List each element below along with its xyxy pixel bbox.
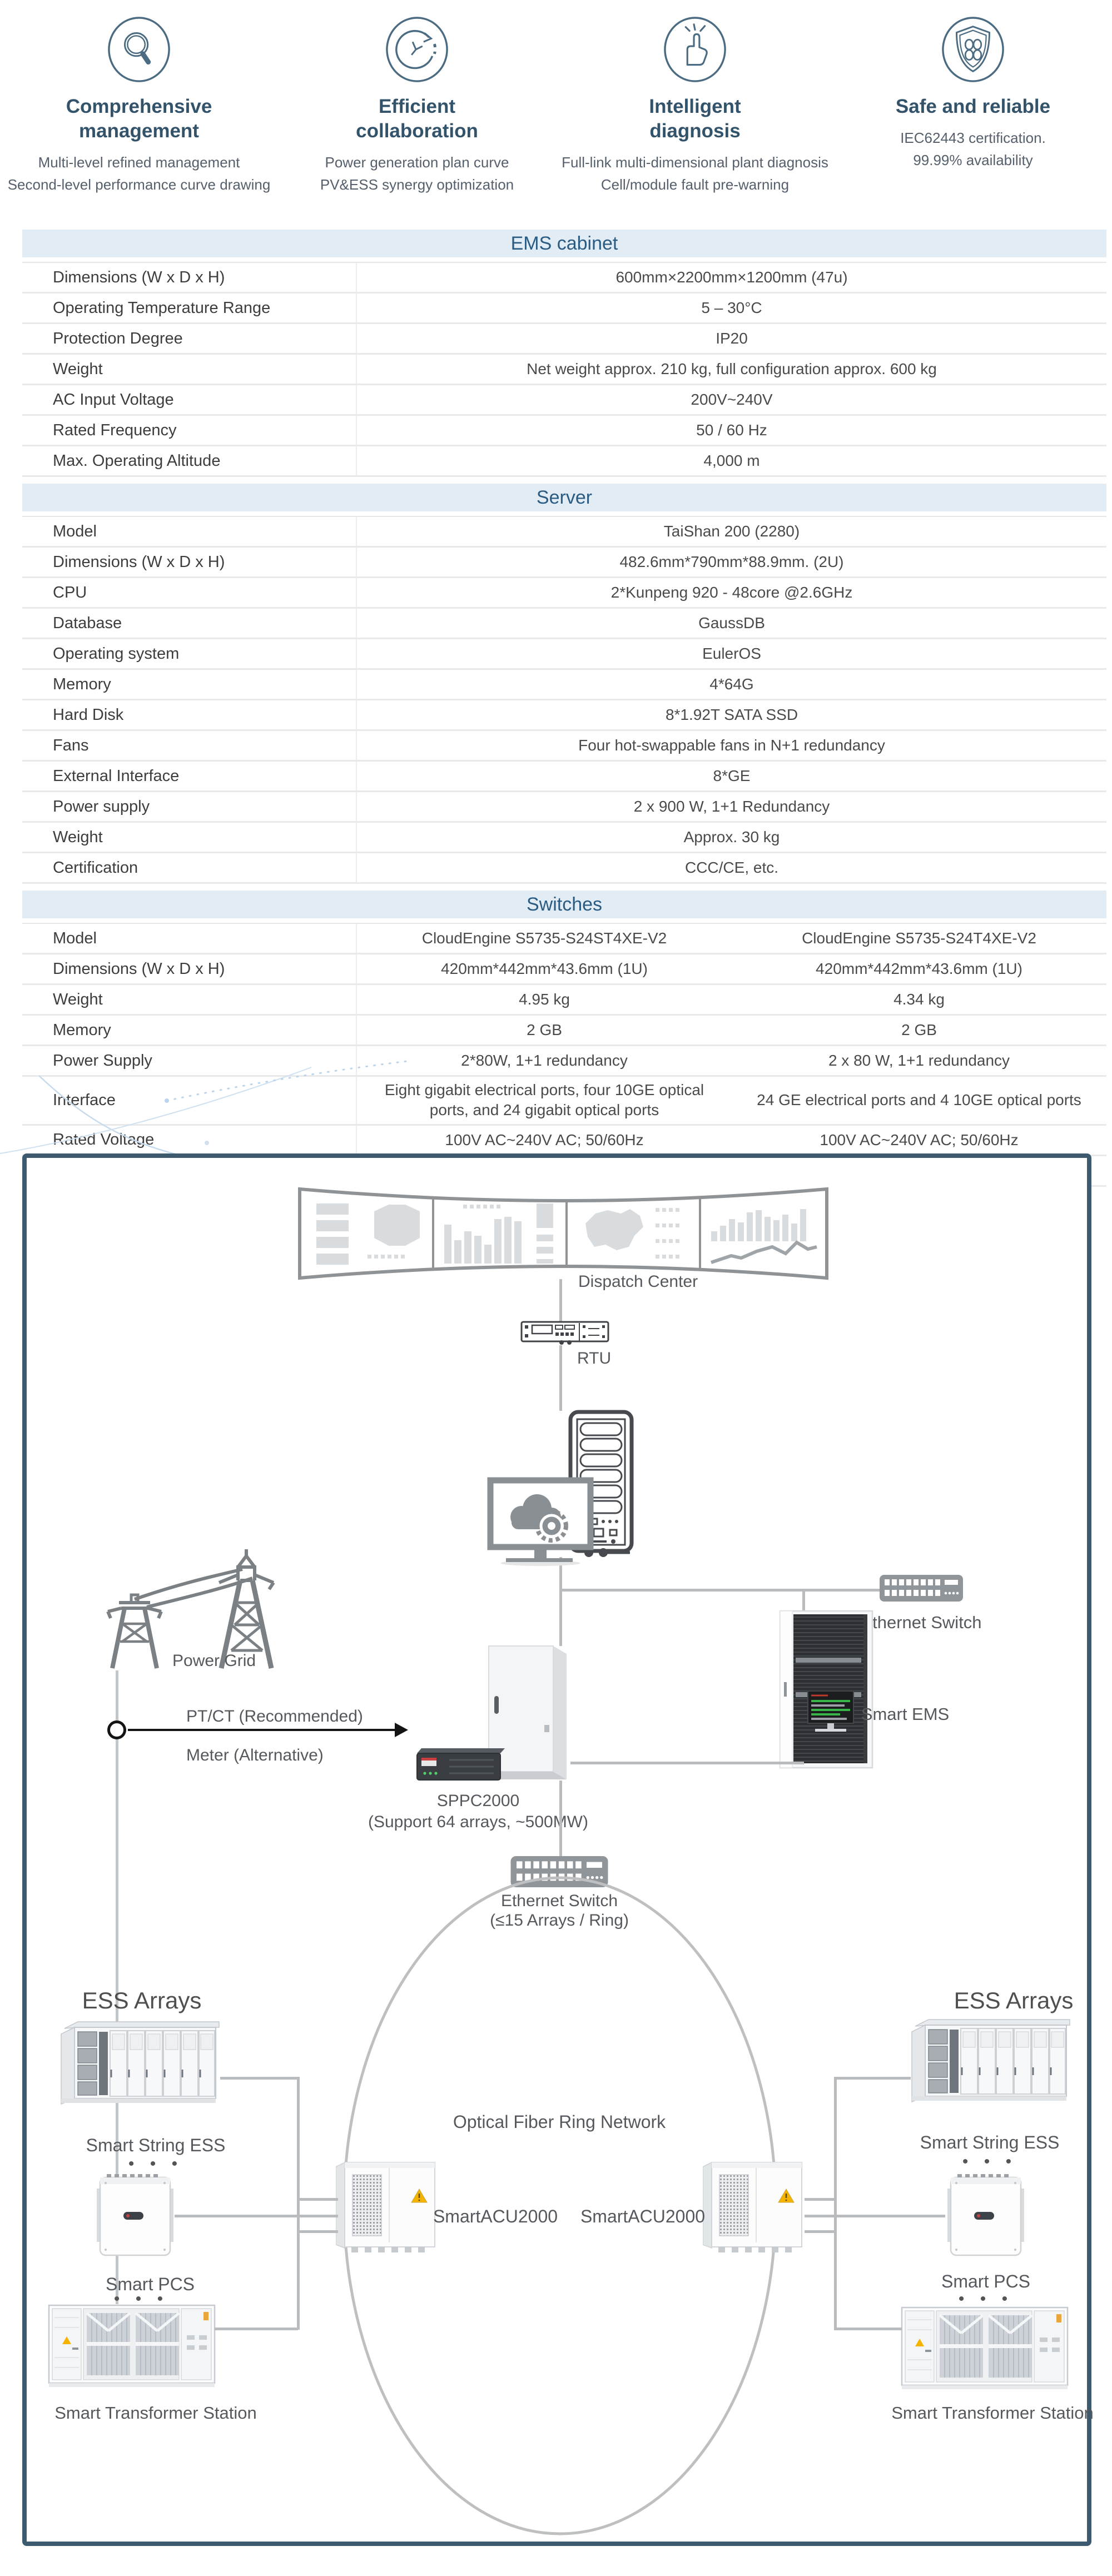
spec-label: Memory [22,1016,356,1045]
spec-label: Weight [22,985,356,1014]
spec-row: Hard Disk8*1.92T SATA SSD [22,700,1106,731]
spec-label: Operating Temperature Range [22,294,356,322]
feature-desc: IEC62443 certification. 99.99% availabil… [900,127,1046,172]
server-title: Server [22,484,1106,511]
smart-string-ess-left-label: Smart String ESS [86,2135,226,2156]
smart-pcs-right-icon [945,2173,1026,2261]
switches-title: Switches [22,891,1106,918]
spec-label: External Interface [22,762,356,790]
connector-switch-ems [802,1589,805,1612]
spec-value: 100V AC~240V AC; 50/60Hz [356,1126,732,1155]
ethernet-switch-icon [880,1575,963,1604]
spec-value: 4,000 m [356,446,1106,475]
ellipsis-left-1: • • • [128,2155,183,2174]
spec-value: 420mm*442mm*43.6mm (1U) [356,954,732,983]
spec-value: TaiShan 200 (2280) [356,517,1106,546]
spec-row: Memory4*64G [22,670,1106,700]
spec-value: 100V AC~240V AC; 50/60Hz [732,1126,1106,1155]
bus-right [834,2077,837,2330]
spec-value: 2 GB [356,1016,732,1045]
ess-arrays-left-title: ESS Arrays [82,1987,202,2014]
feature-comprehensive-management: Comprehensive management Multi-level ref… [0,16,278,196]
spec-label: Model [22,517,356,546]
smart-string-ess-right-label: Smart String ESS [920,2132,1060,2153]
snap-fingers-icon [662,16,728,83]
spec-row: Weight4.95 kg4.34 kg [22,985,1106,1016]
spec-value: EulerOS [356,639,1106,668]
spec-label: Interface [22,1077,356,1124]
feature-title: Intelligent diagnosis [603,95,787,143]
spec-label: Max. Operating Altitude [22,446,356,475]
spec-label: Certification [22,853,356,882]
feature-title: Safe and reliable [896,95,1050,119]
spec-label: Weight [22,823,356,852]
spec-value: Eight gigabit electrical ports, four 10G… [356,1077,732,1124]
spec-row: Rated Voltage100V AC~240V AC; 50/60Hz100… [22,1126,1106,1156]
connector-ess-bus-left [220,2077,299,2080]
spec-value: 5 – 30°C [356,294,1106,322]
spec-value: 4.95 kg [356,985,732,1014]
spec-row: WeightNet weight approx. 210 kg, full co… [22,355,1106,385]
spec-row: Max. Operating Altitude4,000 m [22,446,1106,477]
connector-rtu-server [559,1345,562,1411]
sppc2000-sub-label: (Support 64 arrays, ~500MW) [368,1813,588,1832]
spec-value: Approx. 30 kg [356,823,1106,852]
spec-value: 2*Kunpeng 920 - 48core @2.6GHz [356,578,1106,607]
smart-string-ess-left-icon [59,2020,221,2110]
spec-row: Dimensions (W x D x H)600mm×2200mm×1200m… [22,263,1106,294]
spec-label: Dimensions (W x D x H) [22,548,356,576]
switches-table: Switches ModelCloudEngine S5735-S24ST4XE… [22,891,1106,1187]
grid-tap-node [107,1720,126,1739]
stub-right-2 [805,2215,834,2217]
ptct-label: PT/CT (Recommended) [186,1707,363,1726]
spec-value: 200V~240V [356,385,1106,414]
smart-ems-rack-icon [779,1610,873,1772]
smartacu2000-right-label: SmartACU2000 [580,2206,705,2227]
smartacu2000-left-icon [336,2158,439,2257]
smart-transformer-left-label: Smart Transformer Station [54,2403,257,2423]
metering-arrow [128,1729,396,1731]
spec-row: CertificationCCC/CE, etc. [22,853,1106,884]
spec-label: Power supply [22,792,356,821]
server-table: Server ModelTaiShan 200 (2280)Dimensions… [22,484,1106,884]
stub-right-1 [805,2198,834,2201]
spec-row: Dimensions (W x D x H)420mm*442mm*43.6mm… [22,954,1106,985]
connector-pcs-bus-left [175,2215,298,2217]
stub-left-3 [297,2230,338,2233]
spec-label: Fans [22,731,356,760]
metering-arrow-head [395,1723,408,1737]
feature-desc: Power generation plan curve PV&ESS syner… [320,151,514,196]
connector-ess-bus-right [836,2077,911,2080]
ring-network-label: Optical Fiber Ring Network [453,2112,666,2132]
connector-sppc-ring-switch [559,1781,562,1858]
spec-label: Model [22,924,356,953]
stub-right-3 [805,2230,834,2233]
dispatch-center-label: Dispatch Center [578,1272,698,1291]
spec-value: 8*1.92T SATA SSD [356,700,1106,729]
smartacu2000-right-icon [703,2158,806,2257]
spec-label: Weight [22,355,356,384]
sppc2000-controller-icon [416,1744,506,1786]
spec-label: Operating system [22,639,356,668]
spec-label: Rated Frequency [22,416,356,445]
spec-value: 4.34 kg [732,985,1106,1014]
shield-icon [940,16,1006,83]
spec-value: 24 GE electrical ports and 4 10GE optica… [732,1077,1106,1124]
spec-row: ModelCloudEngine S5735-S24ST4XE-V2CloudE… [22,924,1106,954]
spec-row: Dimensions (W x D x H)482.6mm*790mm*88.9… [22,548,1106,578]
power-grid-label: Power Grid [172,1652,256,1670]
spec-row: DatabaseGaussDB [22,609,1106,639]
spec-row: Operating Temperature Range5 – 30°C [22,294,1106,324]
spec-row: Power supply2 x 900 W, 1+1 Redundancy [22,792,1106,823]
system-topology-diagram: Dispatch Center RTU [22,1153,1091,2546]
spec-row: Memory2 GB2 GB [22,1016,1106,1046]
spec-row: FansFour hot-swappable fans in N+1 redun… [22,731,1106,762]
stub-left-1 [297,2198,338,2201]
feature-title: Comprehensive management [47,95,231,143]
bus-left [297,2077,300,2330]
smart-string-ess-right-icon [910,2017,1072,2107]
spec-label: Protection Degree [22,324,356,353]
spec-value: CloudEngine S5735-S24T4XE-V2 [732,924,1106,953]
cloud-management-monitor-icon [487,1477,594,1570]
spec-row: Operating systemEulerOS [22,639,1106,670]
spec-label: Rated Voltage [22,1126,356,1155]
feature-safe-and-reliable: Safe and reliable IEC62443 certification… [834,16,1112,196]
meter-label: Meter (Alternative) [186,1746,324,1765]
spec-row: Protection DegreeIP20 [22,324,1106,355]
spec-row: WeightApprox. 30 kg [22,823,1106,853]
connector-pcs-bus-right [834,2215,945,2217]
connector-sppc-ems [570,1762,804,1764]
spec-value: 2 x 80 W, 1+1 redundancy [732,1046,1106,1075]
spec-label: AC Input Voltage [22,385,356,414]
feature-intelligent-diagnosis: Intelligent diagnosis Full-link multi-di… [556,16,834,196]
spec-value: CCC/CE, etc. [356,853,1106,882]
feature-desc: Full-link multi-dimensional plant diagno… [562,151,828,196]
connector-server-sppc [559,1557,562,1646]
spec-value: IP20 [356,324,1106,353]
magnifier-icon [106,16,172,83]
spec-value: 2*80W, 1+1 redundancy [356,1046,732,1075]
spec-row: InterfaceEight gigabit electrical ports,… [22,1077,1106,1126]
ellipsis-right-1: • • • [962,2152,1017,2171]
ems-cabinet-table: EMS cabinet Dimensions (W x D x H)600mm×… [22,230,1106,477]
spec-row: Rated Frequency50 / 60 Hz [22,416,1106,446]
spec-label: Memory [22,670,356,699]
spec-value: Net weight approx. 210 kg, full configur… [356,355,1106,384]
spec-value: 4*64G [356,670,1106,699]
ethernet-switch-label: Ethernet Switch [861,1613,981,1633]
smart-transformer-right-icon [901,2305,1070,2395]
feature-efficient-collaboration: Efficient collaboration Power generation… [278,16,556,196]
spec-value: 600mm×2200mm×1200mm (47u) [356,263,1106,292]
spec-label: Power Supply [22,1046,356,1075]
spec-label: CPU [22,578,356,607]
spec-value: 8*GE [356,762,1106,790]
spec-value: 50 / 60 Hz [356,416,1106,445]
cycle-clock-icon [384,16,450,83]
spec-value: 482.6mm*790mm*88.9mm. (2U) [356,548,1106,576]
spec-value: GaussDB [356,609,1106,638]
dispatch-video-wall [296,1185,830,1285]
connector-wall-rtu [559,1279,562,1322]
spec-value: Four hot-swappable fans in N+1 redundanc… [356,731,1106,760]
smart-pcs-left-icon [95,2173,176,2261]
spec-value: 2 GB [732,1016,1106,1045]
connector-transformer-bus-right [834,2328,902,2330]
connector-server-switch [559,1589,882,1592]
spec-label: Database [22,609,356,638]
rtu-icon [520,1321,609,1348]
feature-row: Comprehensive management Multi-level ref… [0,16,1112,196]
smart-transformer-right-label: Smart Transformer Station [891,2403,1094,2423]
spec-row: External Interface8*GE [22,762,1106,792]
sppc2000-label: SPPC2000 [437,1792,519,1811]
connector-transformer-bus-left [215,2328,298,2330]
stub-left-2 [297,2215,338,2217]
spec-value: 420mm*442mm*43.6mm (1U) [732,954,1106,983]
spec-label: Hard Disk [22,700,356,729]
spec-row: AC Input Voltage200V~240V [22,385,1106,416]
smartacu2000-left-label: SmartACU2000 [433,2206,558,2227]
spec-label: Dimensions (W x D x H) [22,954,356,983]
feature-title: Efficient collaboration [325,95,509,143]
spec-value: CloudEngine S5735-S24ST4XE-V2 [356,924,732,953]
rtu-label: RTU [577,1349,611,1368]
spec-row: Power Supply2*80W, 1+1 redundancy2 x 80 … [22,1046,1106,1077]
feature-desc: Multi-level refined management Second-le… [8,151,271,196]
spec-value: 2 x 900 W, 1+1 Redundancy [356,792,1106,821]
smart-transformer-left-icon [48,2303,217,2393]
spec-row: CPU2*Kunpeng 920 - 48core @2.6GHz [22,578,1106,609]
ems-cabinet-title: EMS cabinet [22,230,1106,257]
spec-label: Dimensions (W x D x H) [22,263,356,292]
ess-arrays-right-title: ESS Arrays [954,1987,1074,2014]
spec-tables: EMS cabinet Dimensions (W x D x H)600mm×… [22,230,1106,1187]
spec-row: ModelTaiShan 200 (2280) [22,517,1106,548]
smart-pcs-right-label: Smart PCS [941,2271,1030,2292]
smart-ems-label: Smart EMS [861,1704,949,1724]
